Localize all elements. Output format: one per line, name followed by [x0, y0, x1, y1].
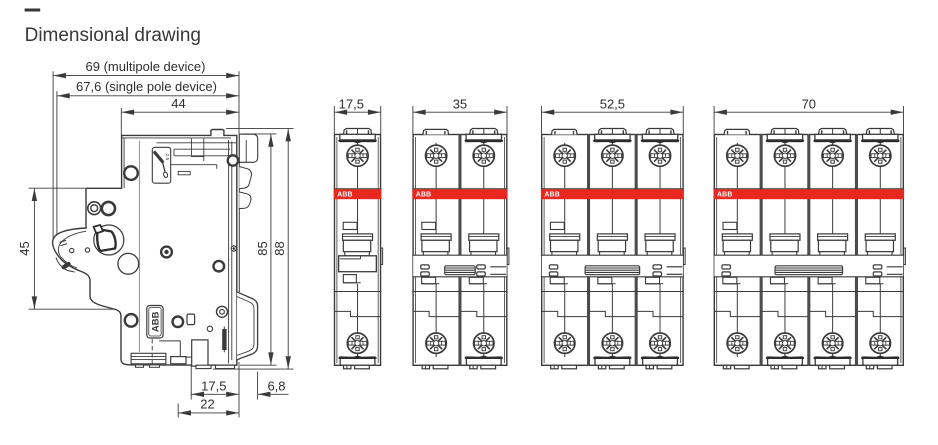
- svg-text:ABB: ABB: [717, 192, 733, 199]
- svg-text:ABB: ABB: [150, 311, 161, 332]
- svg-text:ABB: ABB: [416, 192, 432, 199]
- svg-text:17,5: 17,5: [339, 97, 364, 112]
- svg-text:45: 45: [17, 241, 32, 255]
- svg-text:22: 22: [200, 397, 214, 412]
- svg-text:35: 35: [453, 97, 467, 112]
- svg-text:17,5: 17,5: [201, 378, 226, 393]
- svg-text:ABB: ABB: [544, 192, 560, 199]
- svg-text:69 (multipole device): 69 (multipole device): [86, 59, 206, 74]
- svg-text:88: 88: [272, 241, 287, 255]
- svg-text:85: 85: [255, 241, 270, 255]
- svg-text:52,5: 52,5: [600, 97, 625, 112]
- svg-text:44: 44: [171, 96, 185, 111]
- svg-text:6,8: 6,8: [267, 378, 285, 393]
- svg-text:ABB: ABB: [337, 192, 353, 199]
- svg-text:70: 70: [802, 97, 816, 112]
- svg-text:Dimensional drawing: Dimensional drawing: [25, 25, 201, 46]
- svg-text:2.5: 2.5: [165, 154, 170, 161]
- svg-text:67,6 (single pole device): 67,6 (single pole device): [76, 79, 217, 94]
